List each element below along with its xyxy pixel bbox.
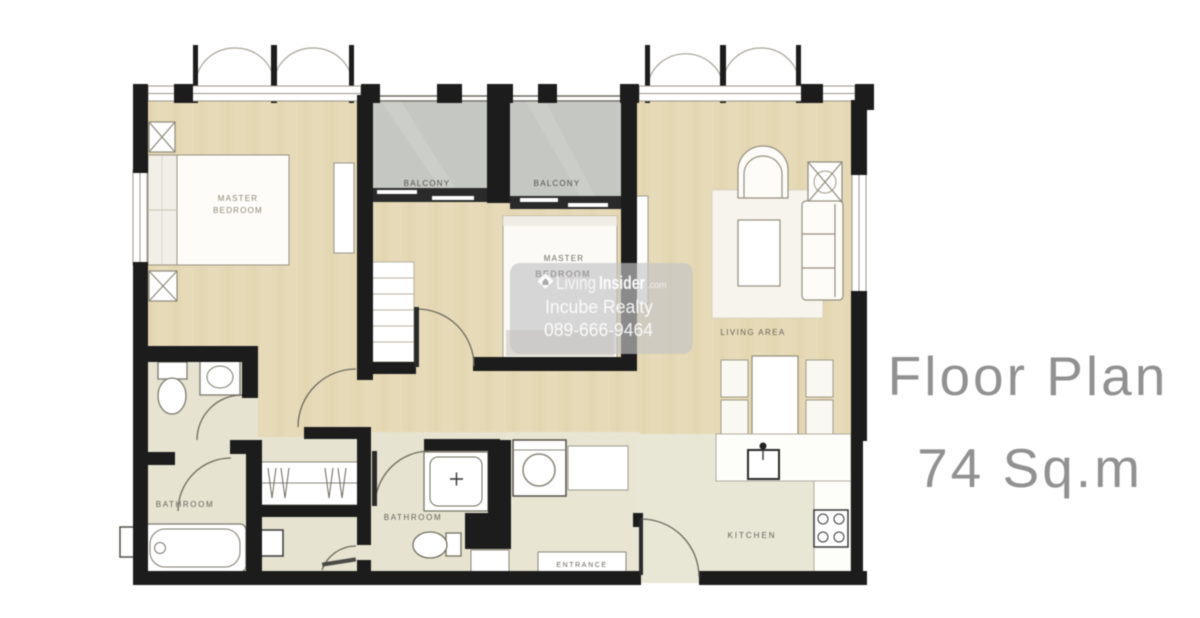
svg-text:.com: .com [647,280,667,290]
svg-text:BALCONY: BALCONY [534,179,581,188]
svg-text:MASTER: MASTER [544,254,585,263]
svg-text:BALCONY: BALCONY [404,179,451,188]
svg-text:BATHROOM: BATHROOM [384,513,442,522]
svg-text:BEDROOM: BEDROOM [213,206,263,215]
svg-text:Floor Plan: Floor Plan [888,345,1169,407]
svg-text:LIVING AREA: LIVING AREA [720,328,785,337]
svg-text:Living: Living [556,273,596,293]
svg-text:74 Sq.m: 74 Sq.m [917,437,1143,499]
svg-text:089-666-9464: 089-666-9464 [544,319,653,340]
svg-text:MASTER: MASTER [218,194,259,203]
svg-text:KITCHEN: KITCHEN [727,531,776,540]
svg-text:ENTRANCE: ENTRANCE [556,562,607,569]
svg-text:BATHROOM: BATHROOM [156,500,214,509]
svg-text:Incube Realty: Incube Realty [545,296,654,317]
svg-text:Insider: Insider [599,273,645,293]
